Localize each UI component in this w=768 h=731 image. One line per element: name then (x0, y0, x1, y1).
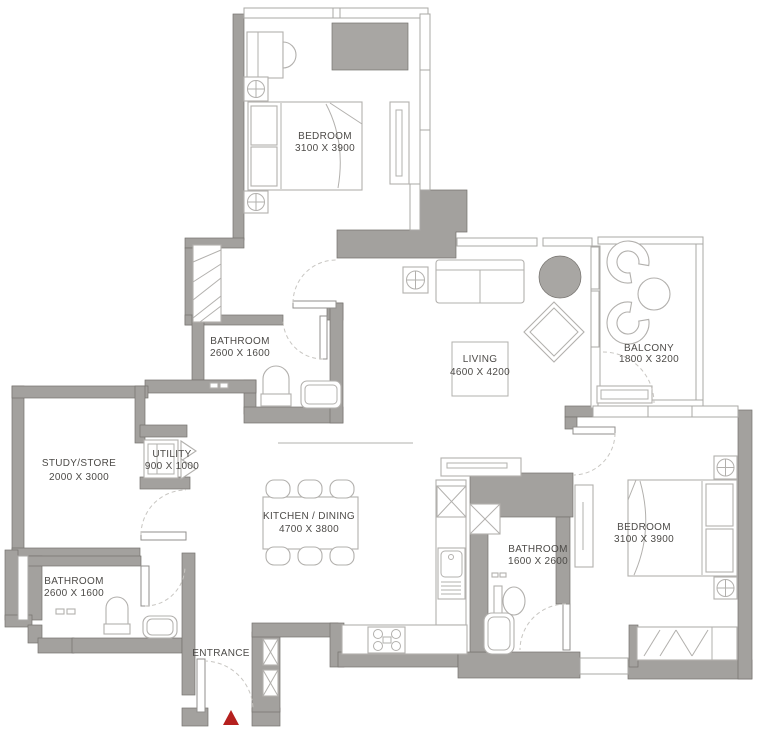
bathroom-1-door (283, 316, 327, 359)
room-dims: 2600 X 1600 (44, 588, 104, 599)
toilet-icon (263, 366, 289, 396)
room-label: BATHROOM (508, 544, 567, 555)
balcony-table-icon (638, 278, 670, 310)
room-label: BATHROOM (210, 336, 269, 347)
study-door (141, 490, 186, 540)
room-label: BEDROOM (298, 131, 352, 142)
living-furniture (403, 256, 584, 476)
wardrobe-icon (637, 627, 737, 660)
dresser-icon (247, 32, 283, 78)
fridge-icon (437, 486, 466, 517)
room-dims: 2000 X 3000 (49, 472, 109, 483)
room-dims: 3100 X 3900 (614, 534, 674, 545)
room-label: BALCONY (624, 343, 674, 354)
balcony-furniture (597, 241, 670, 403)
room-label: UTILITY (152, 449, 191, 460)
stool-icon (283, 42, 296, 68)
tv-console-icon (441, 458, 521, 476)
bench-icon (597, 386, 652, 403)
room-dims: 4600 X 4200 (450, 367, 510, 378)
wardrobe-icon (390, 102, 409, 184)
nightstand-icon (714, 456, 737, 479)
room-dims: 1800 X 3200 (619, 354, 679, 365)
floor-plan: BEDROOM 3100 X 3900 BATHROOM 2600 X 1600… (0, 0, 768, 731)
bedroom-1-furniture (244, 23, 409, 213)
bathroom-2-door (520, 604, 570, 650)
armchair-icon (524, 302, 584, 362)
entrance-door (197, 659, 253, 712)
entrance-marker-icon (223, 710, 239, 725)
shaft-icon (263, 639, 278, 665)
room-label: BATHROOM (44, 576, 103, 587)
room-dims: 3100 X 3900 (295, 143, 355, 154)
room-dims: 2600 X 1600 (210, 348, 270, 359)
room-label: STUDY/STORE (42, 458, 116, 469)
bedroom-2-door (573, 427, 615, 475)
room-dims: 900 X 1000 (145, 461, 199, 472)
floor-lamp-icon (403, 267, 428, 293)
kitchen-sink-icon (438, 548, 465, 599)
room-label: LIVING (463, 354, 498, 365)
nightstand-icon (244, 77, 268, 101)
coffee-table-icon (539, 256, 581, 298)
toilet-icon (106, 597, 128, 626)
room-dims: 1600 X 2600 (508, 556, 568, 567)
room-dims: 4700 X 3800 (279, 524, 339, 535)
stove-icon (368, 627, 405, 653)
room-label: KITCHEN / DINING (263, 511, 355, 522)
utility-door (181, 441, 196, 479)
bedroom-2-furniture (575, 456, 737, 660)
dining-table-icon (263, 497, 358, 549)
toilet-icon (494, 586, 525, 616)
closet-icon (193, 245, 221, 322)
nightstand-icon (714, 577, 737, 599)
sofa-icon (436, 260, 524, 303)
bathtub-icon (484, 613, 514, 654)
rug-icon (332, 23, 408, 70)
bathroom-3-door (141, 566, 185, 606)
balcony-chair-icon (607, 302, 649, 344)
shower-icon (470, 504, 500, 534)
sliding-wardrobe-icon (575, 485, 593, 567)
shaft-icon (263, 670, 278, 696)
dining-set-icon (263, 480, 358, 565)
balcony-chair-icon (607, 241, 649, 283)
nightstand-icon (244, 191, 268, 213)
bedroom-1-door (293, 260, 336, 308)
entrance-label: ENTRANCE (192, 648, 249, 659)
room-label: BEDROOM (617, 522, 671, 533)
